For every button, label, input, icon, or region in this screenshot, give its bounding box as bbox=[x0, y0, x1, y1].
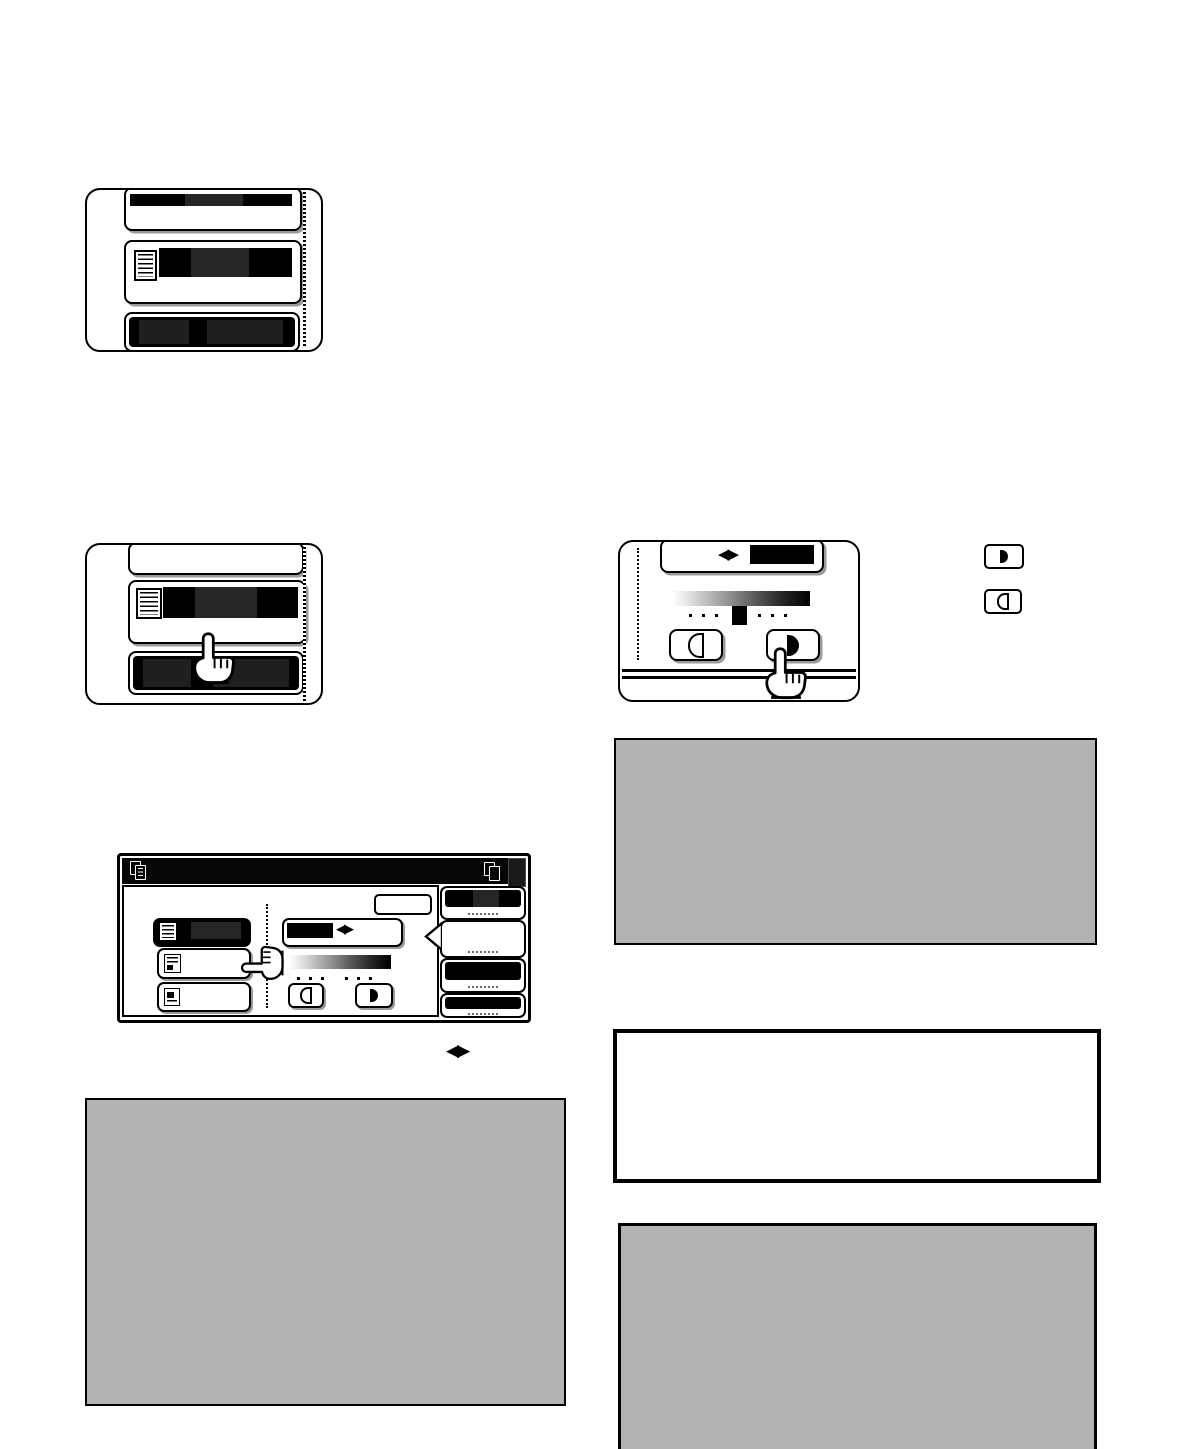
scale-dot bbox=[297, 977, 300, 980]
panel-exposure-adjust-step3: ◀▶ bbox=[618, 540, 860, 702]
text-photo-original-icon bbox=[164, 954, 181, 973]
inline-lighten-key bbox=[984, 589, 1022, 614]
dotted-caption bbox=[468, 951, 498, 953]
corner-key[interactable] bbox=[508, 858, 526, 887]
dotted-caption bbox=[468, 986, 498, 988]
exposure-gradient-bar bbox=[289, 955, 391, 969]
pointing-hand-up-icon bbox=[763, 646, 809, 702]
redacted-label bbox=[129, 317, 295, 347]
darken-key[interactable] bbox=[355, 983, 393, 1008]
darken-icon bbox=[370, 989, 378, 1002]
lighten-icon bbox=[997, 593, 1009, 610]
adjust-arrows-icon: ◀▶ bbox=[718, 547, 737, 562]
redacted-label bbox=[445, 997, 521, 1009]
exposure-level-marker bbox=[732, 606, 747, 625]
exposure-settings-pane: ◀▶ bbox=[122, 885, 439, 1017]
redacted-label bbox=[750, 545, 814, 564]
document-page-icon bbox=[134, 250, 157, 281]
step2-menu-button-1[interactable] bbox=[128, 543, 304, 575]
crop-edge bbox=[637, 548, 639, 660]
scale-dot bbox=[702, 614, 705, 617]
original-type-text-photo-button[interactable] bbox=[157, 948, 251, 979]
tab-pointer bbox=[423, 922, 442, 951]
redacted-label bbox=[163, 587, 298, 618]
step1-menu-button-3-selected[interactable] bbox=[124, 312, 300, 352]
scale-dot bbox=[345, 977, 348, 980]
panel-exposure-select-step2 bbox=[85, 543, 323, 705]
scale-dot bbox=[771, 614, 774, 617]
note-box-right-top bbox=[614, 738, 1097, 945]
pointing-hand-up-icon bbox=[191, 631, 237, 687]
right-tab-2-active[interactable] bbox=[440, 920, 526, 958]
scale-dot bbox=[357, 977, 360, 980]
scale-dot bbox=[309, 977, 312, 980]
scale-dot bbox=[784, 614, 787, 617]
manual-page: ◀▶ bbox=[0, 0, 1190, 1449]
redacted-label bbox=[159, 248, 292, 277]
step1-menu-button-1[interactable] bbox=[124, 188, 302, 231]
original-type-photo-button[interactable] bbox=[157, 982, 251, 1012]
lighten-key[interactable] bbox=[288, 983, 324, 1008]
touchscreen-illustration: ◀▶ bbox=[117, 853, 531, 1023]
text-original-icon bbox=[159, 922, 177, 941]
lighten-key[interactable] bbox=[669, 629, 723, 661]
printer-icon bbox=[484, 862, 502, 882]
scale-dot bbox=[689, 614, 692, 617]
right-tab-4[interactable] bbox=[440, 993, 526, 1018]
right-tab-1[interactable] bbox=[440, 886, 526, 920]
redacted-label bbox=[287, 923, 333, 938]
inline-adjust-arrows-icon: ◀▶ bbox=[446, 1043, 468, 1060]
dotted-caption bbox=[468, 913, 498, 915]
adjust-arrows-icon: ◀▶ bbox=[336, 923, 352, 936]
document-page-icon bbox=[136, 588, 162, 619]
copy-mode-icon bbox=[130, 861, 148, 881]
pointing-hand-left-icon bbox=[240, 944, 286, 982]
panel-special-modes-step1 bbox=[85, 188, 323, 352]
crop-edge bbox=[303, 547, 306, 701]
redacted-label bbox=[130, 194, 292, 206]
dotted-caption bbox=[468, 1013, 498, 1015]
bezel-line bbox=[622, 669, 856, 672]
scale-dot bbox=[369, 977, 372, 980]
status-bar bbox=[122, 858, 526, 884]
ok-button[interactable] bbox=[374, 894, 432, 915]
exposure-mode-button[interactable]: ◀▶ bbox=[660, 540, 824, 573]
original-type-text-button-selected[interactable] bbox=[153, 918, 251, 947]
redacted-label bbox=[445, 962, 521, 980]
scale-dot bbox=[758, 614, 761, 617]
lighten-icon bbox=[300, 987, 312, 1004]
note-box-left bbox=[85, 1098, 566, 1406]
exposure-gradient-bar bbox=[672, 591, 810, 606]
scale-dot bbox=[321, 977, 324, 980]
photo-original-icon bbox=[164, 988, 180, 1006]
crop-edge bbox=[303, 192, 306, 348]
inline-darken-key bbox=[984, 544, 1024, 569]
right-tab-3[interactable] bbox=[440, 958, 526, 993]
lighten-icon bbox=[688, 633, 704, 658]
redacted-label bbox=[445, 890, 521, 907]
info-box-right-middle bbox=[613, 1029, 1101, 1183]
note-box-right-bottom bbox=[618, 1223, 1097, 1449]
step1-menu-button-2[interactable] bbox=[124, 240, 302, 304]
scale-dot bbox=[715, 614, 718, 617]
exposure-mode-button[interactable]: ◀▶ bbox=[282, 918, 403, 947]
bezel-line bbox=[622, 676, 856, 679]
darken-icon bbox=[1000, 550, 1008, 563]
redacted-label bbox=[191, 922, 241, 939]
